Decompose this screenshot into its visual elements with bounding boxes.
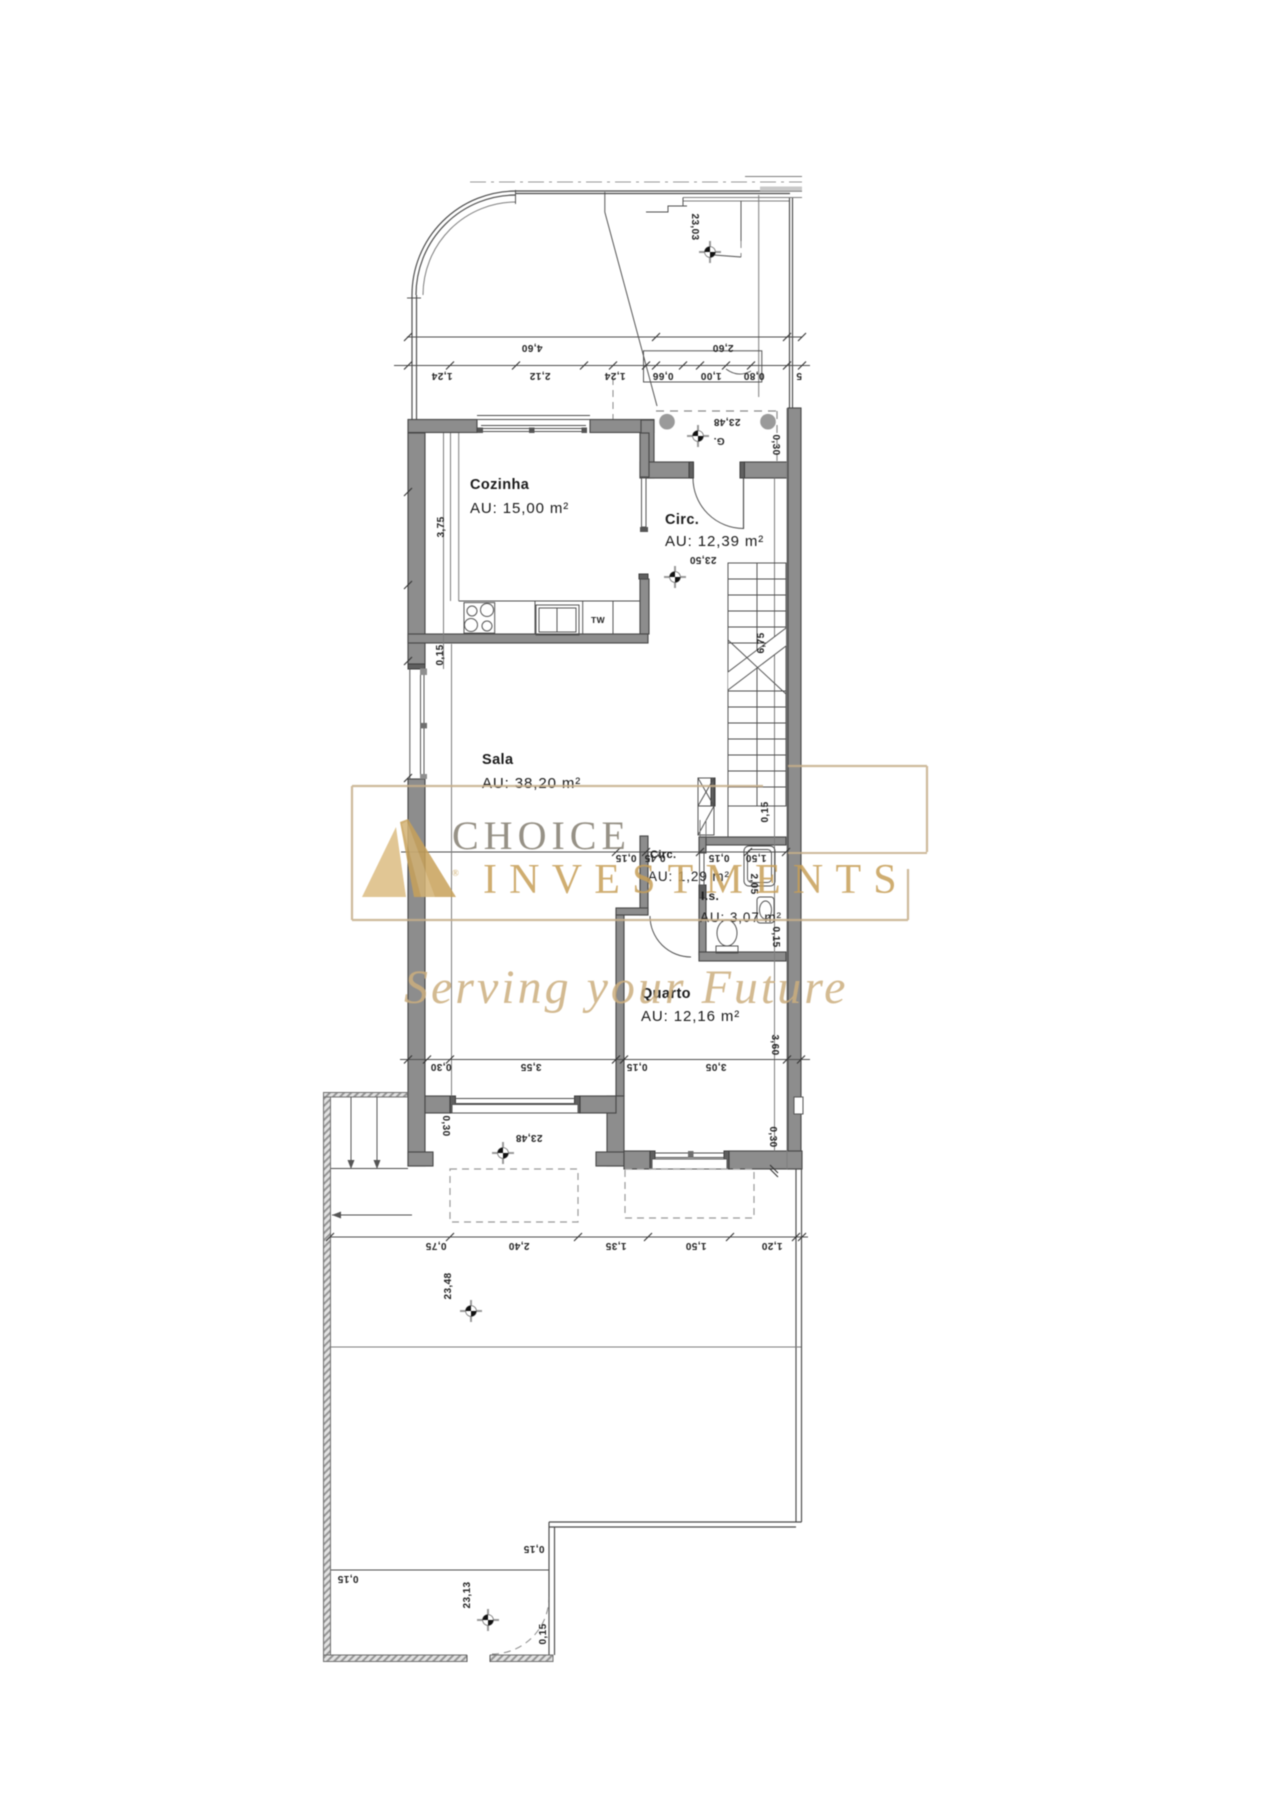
svg-text:AU: 12,39 m²: AU: 12,39 m²: [665, 533, 764, 550]
svg-text:6,75: 6,75: [756, 632, 767, 653]
svg-text:0,15: 0,15: [337, 1573, 358, 1584]
svg-text:0,15: 0,15: [760, 801, 771, 822]
svg-text:AU: 3,07 m²: AU: 3,07 m²: [700, 910, 782, 925]
svg-text:23,50: 23,50: [689, 554, 716, 565]
svg-text:23,48: 23,48: [515, 1132, 542, 1143]
svg-text:2,40: 2,40: [508, 1240, 529, 1251]
svg-text:1,20: 1,20: [761, 1240, 782, 1251]
svg-text:1,50: 1,50: [685, 1240, 706, 1251]
svg-text:CHOICE: CHOICE: [452, 813, 631, 858]
svg-text:AU: 15,00 m²: AU: 15,00 m²: [470, 500, 569, 517]
svg-text:Circ.: Circ.: [665, 512, 699, 528]
svg-text:®: ®: [452, 868, 459, 878]
svg-text:0,15: 0,15: [770, 926, 781, 947]
svg-text:AU: 38,20 m²: AU: 38,20 m²: [482, 775, 581, 792]
svg-text:INVESTMENTS: INVESTMENTS: [483, 857, 909, 903]
svg-text:0,15: 0,15: [538, 1623, 549, 1644]
svg-text:0,15: 0,15: [435, 644, 446, 665]
svg-text:1,24: 1,24: [431, 370, 452, 381]
svg-text:TW: TW: [591, 615, 606, 625]
svg-text:23,48: 23,48: [713, 416, 740, 427]
svg-text:0,75: 0,75: [425, 1240, 446, 1251]
svg-text:1,35: 1,35: [605, 1240, 626, 1251]
svg-text:G.: G.: [713, 435, 724, 446]
svg-text:23,48: 23,48: [443, 1272, 454, 1299]
svg-text:23,03: 23,03: [689, 213, 700, 240]
svg-text:23,13: 23,13: [462, 1581, 473, 1608]
svg-text:3,05: 3,05: [705, 1061, 726, 1072]
svg-text:5: 5: [796, 370, 802, 381]
svg-text:2,60: 2,60: [712, 342, 733, 353]
svg-text:0,15: 0,15: [523, 1543, 544, 1554]
svg-text:0,66: 0,66: [652, 370, 673, 381]
svg-text:0,30: 0,30: [767, 1126, 778, 1147]
svg-text:1,24: 1,24: [604, 370, 625, 381]
svg-text:1,00: 1,00: [700, 370, 721, 381]
svg-text:4,60: 4,60: [521, 342, 542, 353]
svg-text:0,15: 0,15: [626, 1061, 647, 1072]
svg-text:3,60: 3,60: [769, 1034, 780, 1055]
svg-text:0,80: 0,80: [743, 370, 764, 381]
svg-text:2,12: 2,12: [529, 370, 550, 381]
svg-text:0,30: 0,30: [770, 434, 781, 455]
svg-text:0,30: 0,30: [430, 1061, 451, 1072]
svg-text:3,75: 3,75: [436, 516, 447, 537]
svg-text:Sala: Sala: [482, 752, 514, 768]
svg-text:3,55: 3,55: [520, 1061, 541, 1072]
svg-text:Serving your Future: Serving your Future: [404, 961, 848, 1014]
svg-text:0,30: 0,30: [440, 1115, 451, 1136]
svg-text:Cozinha: Cozinha: [470, 477, 530, 493]
